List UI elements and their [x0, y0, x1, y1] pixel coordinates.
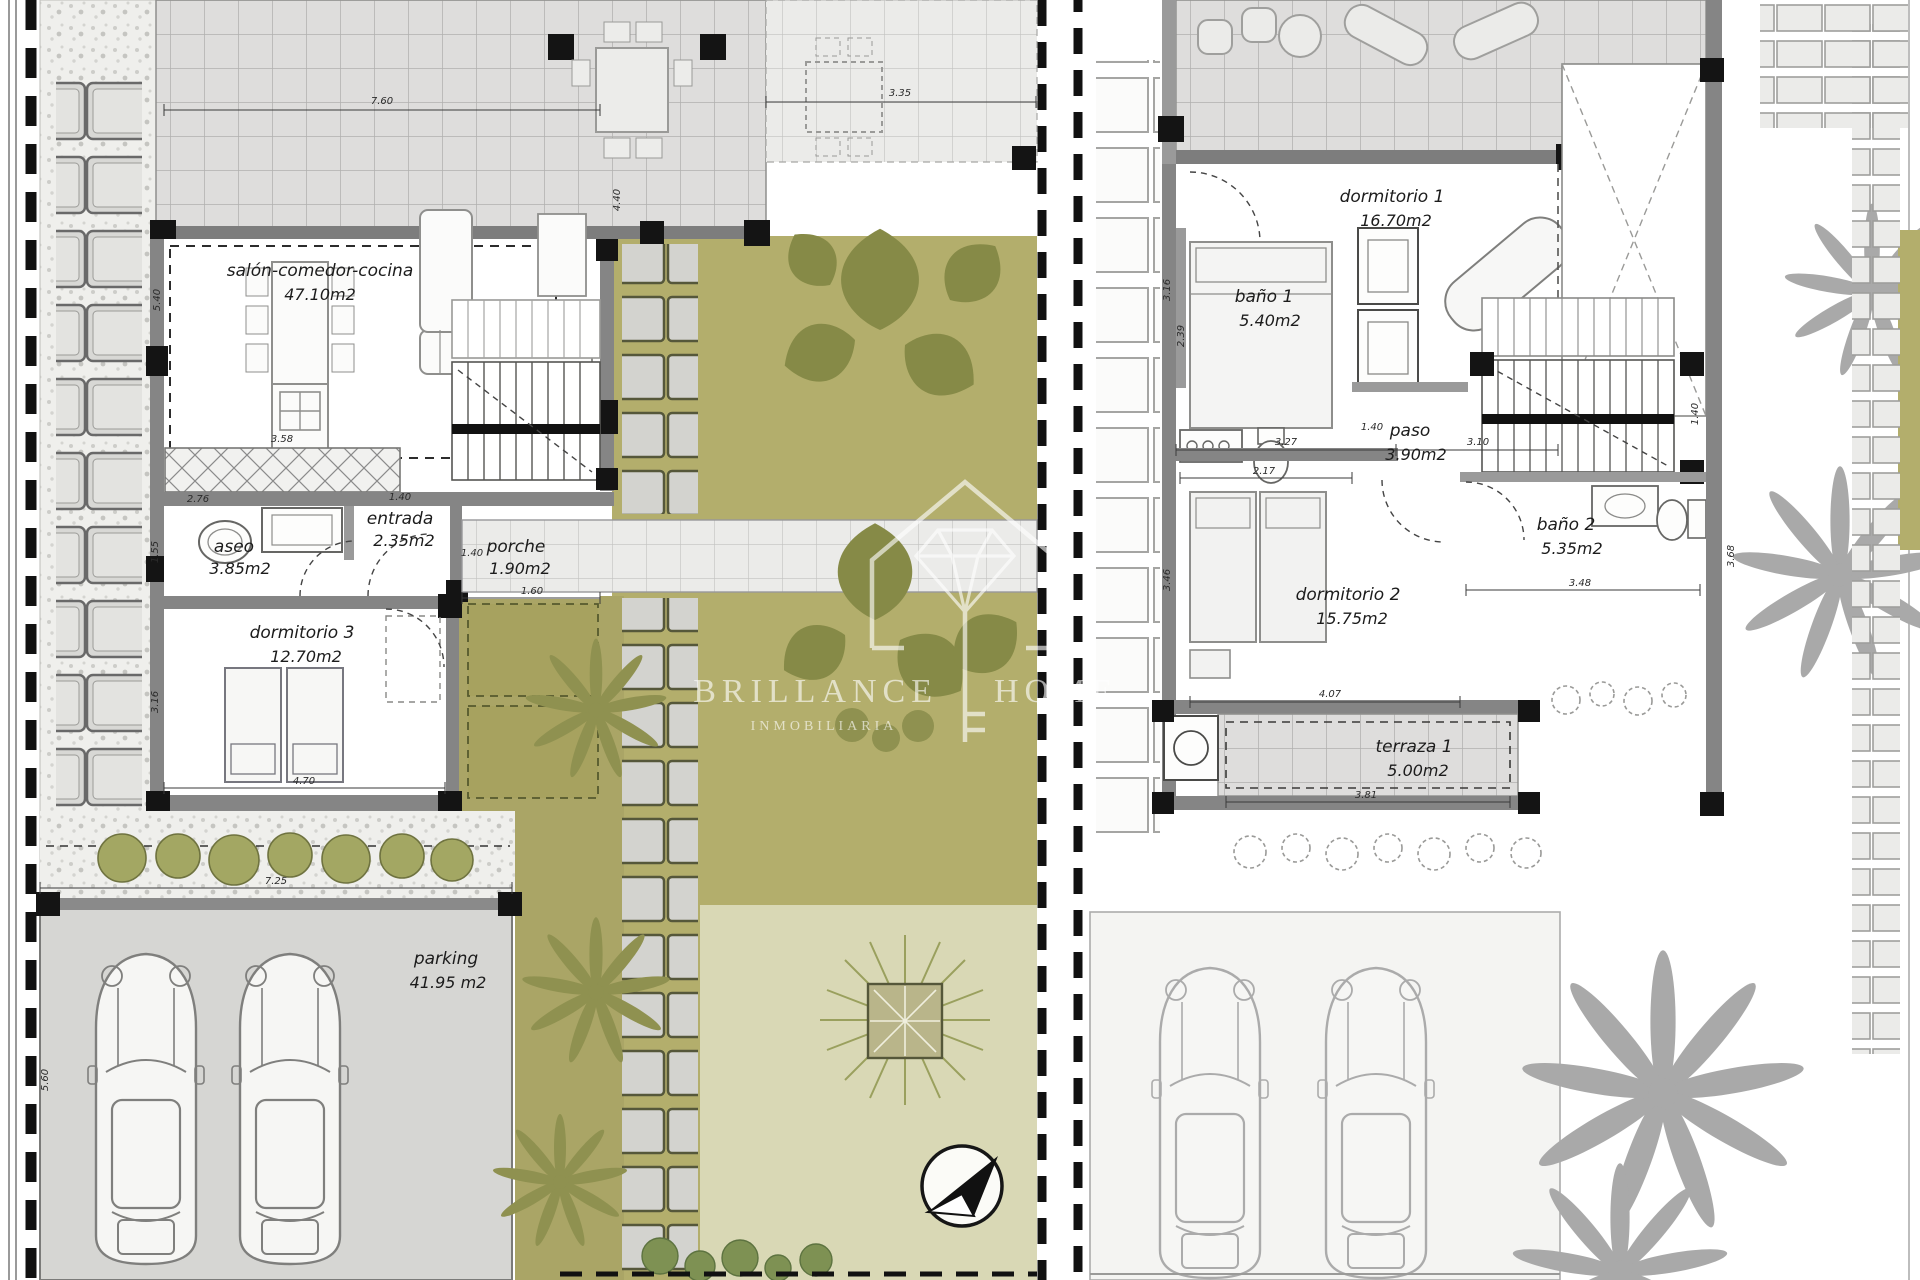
dim-porche-left: 1.40 [461, 548, 483, 559]
room-area-dormitorio1: 16.70m2 [1360, 211, 1432, 230]
room-label-banio1: baño 1 [1235, 287, 1294, 307]
room-area-porche: 1.90m2 [489, 559, 550, 578]
room-label-terraza1: terraza 1 [1375, 737, 1452, 757]
paver-column [56, 78, 142, 874]
toilet-icon [1657, 500, 1706, 540]
dim-parking-width: 7.25 [265, 876, 287, 887]
room-label-aseo: aseo [214, 537, 254, 557]
wardrobe-upper [1482, 298, 1674, 356]
dim-banio2-right: 3.68 [1726, 545, 1737, 567]
washing-machine-icon [1164, 716, 1218, 780]
context-paver-column [1096, 60, 1160, 840]
dim-right-upper: 4.40 [612, 189, 623, 211]
dim-paso: 1.40 [1361, 422, 1383, 433]
dim-salon-height: 5.40 [152, 289, 163, 311]
dim-aseo-top: 2.76 [187, 494, 209, 505]
compass-icon [922, 1146, 1002, 1226]
dim-entrada: 1.40 [389, 492, 411, 503]
kitchen-island [272, 384, 328, 458]
room-label-salon: salón-comedor-cocina [227, 261, 413, 281]
car-icon [232, 954, 348, 1264]
room-label-dormitorio2: dormitorio 2 [1296, 585, 1401, 605]
dim-dorm1-a: 3.27 [1275, 437, 1298, 448]
pergola-deck [150, 0, 1037, 246]
room-area-dormitorio2: 15.75m2 [1316, 609, 1388, 628]
room-label-paso: paso [1389, 421, 1430, 441]
watermark-brand-left: BRILLANCE [693, 673, 938, 710]
car-icon [1318, 968, 1434, 1278]
dim-aseo-left: 1.55 [150, 541, 161, 563]
ground-floor-plan [36, 0, 1037, 1280]
gravel-strip [40, 0, 156, 892]
room-label-entrada: entrada [367, 509, 434, 529]
watermark-brand-right: HOME [994, 673, 1118, 710]
room-area-dormitorio3: 12.70m2 [270, 647, 342, 666]
dim-porche-width: 1.60 [521, 586, 543, 597]
room-label-dormitorio1: dormitorio 1 [1340, 187, 1445, 207]
context-parking [1090, 912, 1560, 1280]
room-area-banio1: 5.40m2 [1239, 311, 1300, 330]
sink-icon [1592, 486, 1658, 526]
first-floor-plan [1090, 0, 1920, 1280]
watermark-subtitle: INMOBILIARIA [751, 719, 898, 734]
stairs-upper [1470, 352, 1704, 484]
dim-stairs-right: 1.40 [1690, 403, 1701, 425]
bed-dormitorio1 [1190, 242, 1332, 428]
dim-dorm3-left: 3.16 [150, 691, 161, 713]
floorplan-canvas: 7.60 5.40 4.40 3.35 3.58 2.76 1.40 1.55 … [0, 0, 1920, 1280]
room-label-dormitorio3: dormitorio 3 [250, 623, 355, 643]
dim-terraza-width: 3.81 [1355, 790, 1377, 801]
room-area-paso: 3.90m2 [1385, 445, 1446, 464]
room-label-porche: porche [486, 537, 546, 557]
dim-banio1-left: 2.39 [1176, 325, 1187, 347]
dim-dorm3-width: 4.70 [293, 776, 315, 787]
dim-dorm2-left: 3.46 [1162, 569, 1173, 591]
dim-banio1-width: 2.17 [1253, 466, 1276, 477]
room-label-banio2: baño 2 [1537, 515, 1596, 535]
garden-path-pavers [622, 244, 698, 1274]
dim-parking-height: 5.60 [40, 1069, 51, 1091]
room-area-terraza1: 5.00m2 [1387, 761, 1448, 780]
dim-pergola: 3.35 [889, 88, 911, 99]
room-area-entrada: 2.35m2 [373, 531, 434, 550]
room-area-parking: 41.95 m2 [410, 973, 487, 992]
floorplan-page: 7.60 5.40 4.40 3.35 3.58 2.76 1.40 1.55 … [0, 0, 1920, 1280]
dim-dorm1-left: 3.16 [1162, 279, 1173, 301]
dim-dorm2-width: 4.07 [1319, 689, 1342, 700]
planter-hatch [165, 448, 400, 492]
fountain-icon [820, 935, 990, 1105]
room-label-parking: parking [413, 949, 479, 969]
terraza-slab [1218, 714, 1518, 796]
car-icon [1152, 968, 1268, 1278]
door-arc-paso [1382, 480, 1444, 542]
corner-pavers [1760, 0, 1908, 128]
stairs-ground [452, 300, 618, 490]
margin-pavers [1852, 24, 1900, 1054]
room-area-banio2: 5.35m2 [1541, 539, 1602, 558]
car-icon [88, 954, 204, 1264]
room-area-aseo: 3.85m2 [209, 559, 270, 578]
context-garden-sliver [1898, 230, 1920, 550]
tv-cabinet [538, 214, 586, 296]
dim-dorm1-b: 3.10 [1467, 437, 1489, 448]
dim-banio2-width: 3.48 [1569, 578, 1591, 589]
door-arc-banio2 [1466, 482, 1524, 540]
dim-planter: 3.58 [271, 434, 293, 445]
room-area-salon: 47.10m2 [284, 285, 356, 304]
dim-salon-width: 7.60 [371, 96, 393, 107]
